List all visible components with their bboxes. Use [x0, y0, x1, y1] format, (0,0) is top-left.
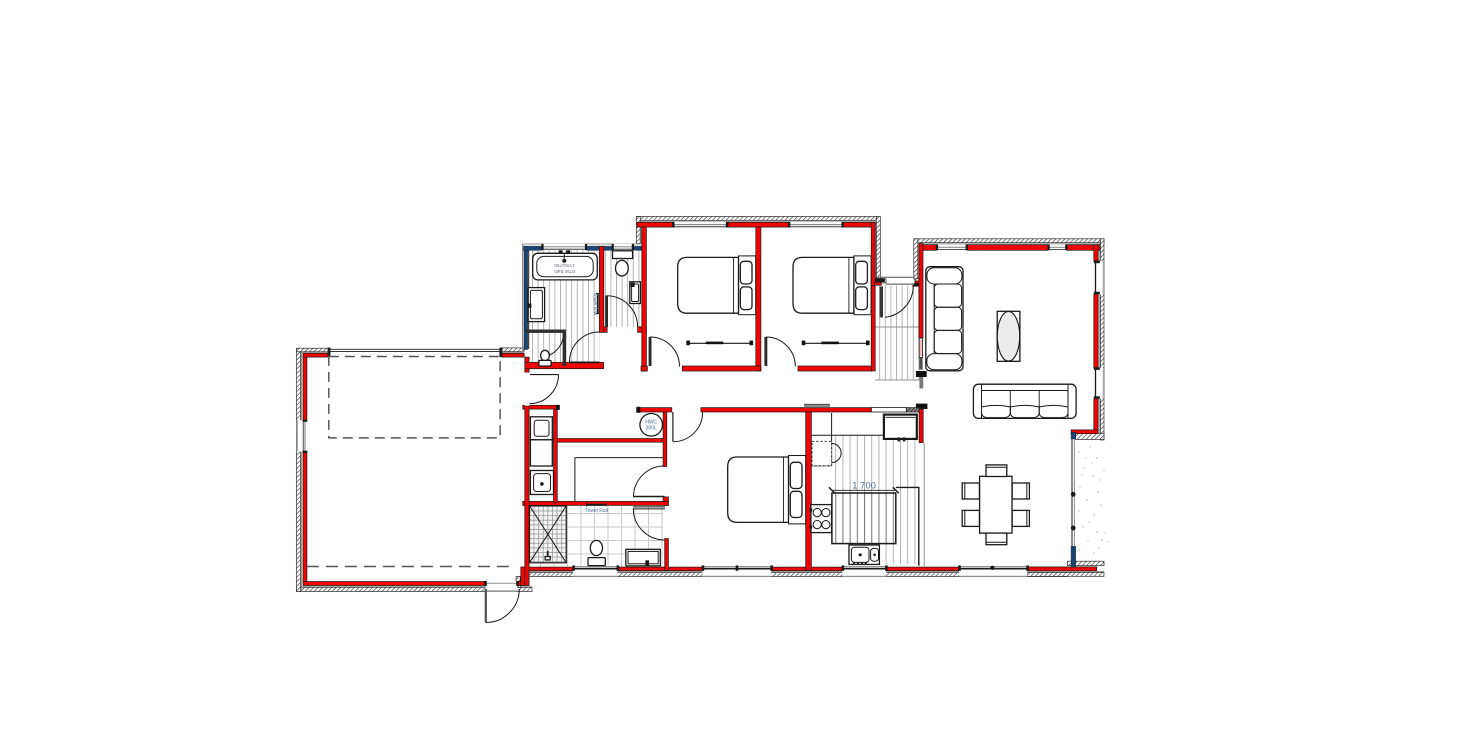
- svg-text:BTW Bath: BTW Bath: [554, 269, 575, 274]
- svg-text:1 700: 1 700: [852, 480, 876, 491]
- svg-text:300L: 300L: [646, 426, 657, 432]
- svg-text:Towel Rail: Towel Rail: [591, 293, 597, 316]
- svg-text:Towel Rail: Towel Rail: [585, 508, 608, 514]
- svg-text:1700x750: 1700x750: [554, 263, 575, 268]
- svg-text:HWC: HWC: [645, 419, 657, 425]
